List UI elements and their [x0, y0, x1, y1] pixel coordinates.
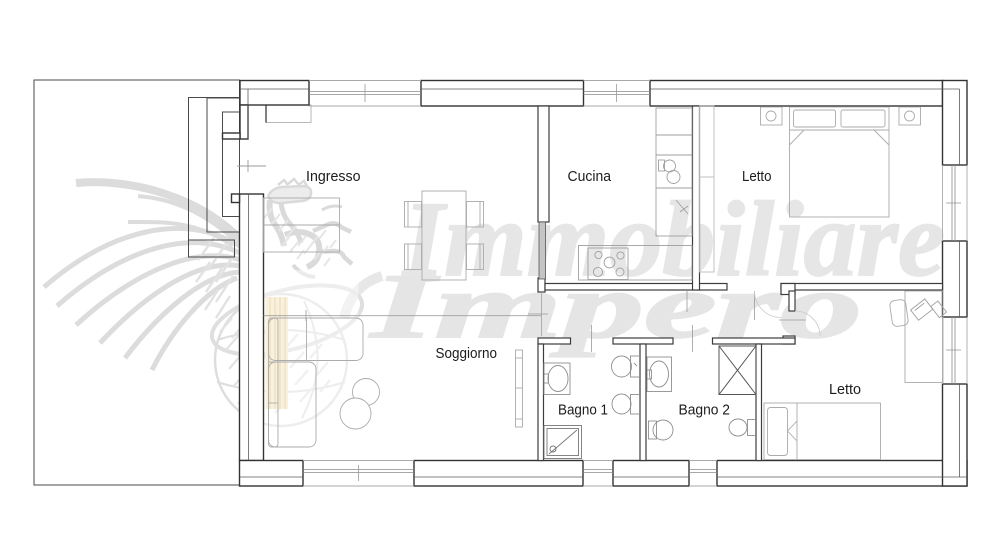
svg-text:Cucina: Cucina [568, 168, 612, 185]
svg-text:Letto: Letto [829, 381, 861, 398]
svg-text:Soggiorno: Soggiorno [436, 345, 498, 362]
svg-text:Ingresso: Ingresso [306, 168, 361, 185]
svg-text:Bagno 2: Bagno 2 [679, 402, 731, 419]
svg-text:Letto: Letto [742, 168, 772, 185]
svg-text:Bagno 1: Bagno 1 [558, 402, 608, 419]
